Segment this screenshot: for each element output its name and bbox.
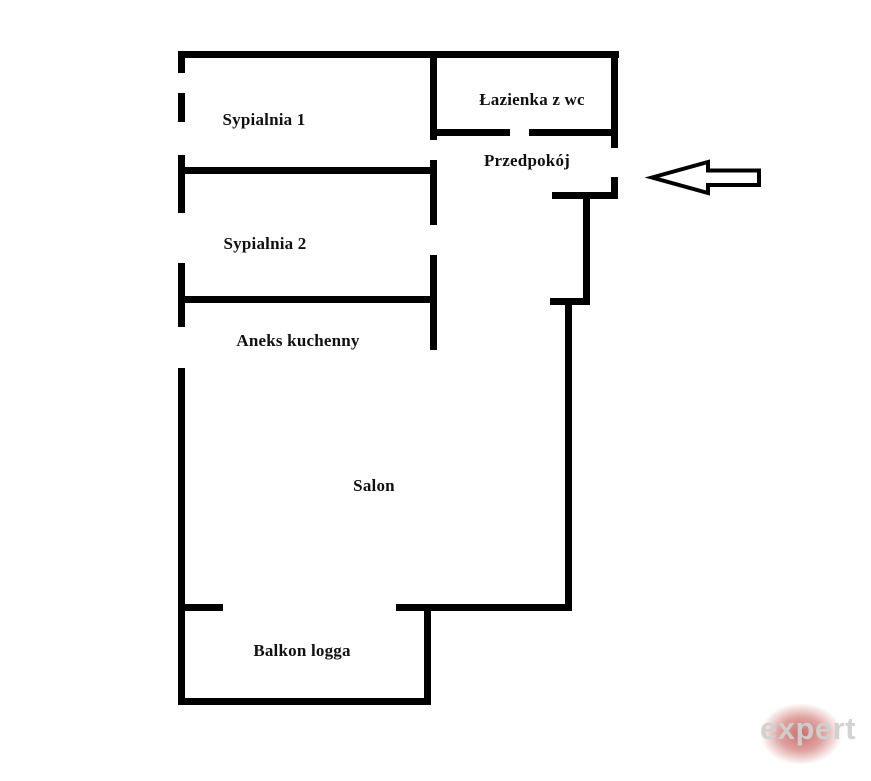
room-label-aneks-kuchenny: Aneks kuchenny [236,331,359,351]
room-label-balkon-logga: Balkon logga [253,641,350,661]
walls [179,51,619,705]
room-label-salon: Salon [353,476,395,496]
entrance-arrow [652,162,759,193]
floor-plan-drawing [0,0,871,781]
floor-plan: Sypialnia 1 Łazienka z wc Przedpokój Syp… [0,0,871,781]
room-label-sypialnia-2: Sypialnia 2 [224,234,307,254]
room-label-lazienka-z-wc: Łazienka z wc [479,90,585,110]
watermark: expert [745,700,871,775]
watermark-text: expert [745,713,871,744]
room-label-sypialnia-1: Sypialnia 1 [223,110,306,130]
room-label-przedpokoj: Przedpokój [484,151,570,171]
